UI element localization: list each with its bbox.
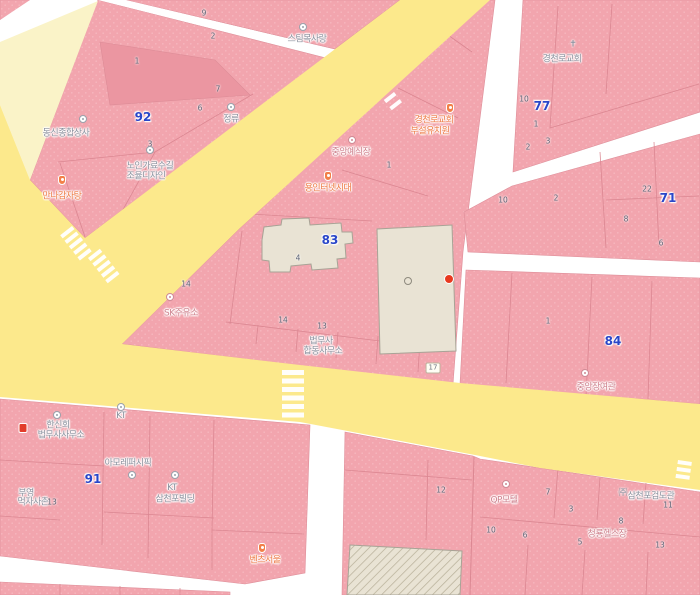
route-shield: 17 bbox=[426, 363, 441, 374]
law-office-icon bbox=[53, 411, 61, 419]
parcel-number: 2 bbox=[211, 32, 216, 41]
parcel-number: 1 bbox=[534, 120, 539, 129]
parcel-number: 6 bbox=[523, 531, 528, 540]
internet-cafe-pin-icon bbox=[324, 171, 332, 181]
building-hatched bbox=[347, 545, 462, 595]
poi-label-kt: KT bbox=[116, 411, 126, 421]
poi-label-gas-station: SK주유소 bbox=[164, 306, 198, 319]
block-number-84: 84 bbox=[605, 334, 622, 348]
poi-label-buyoung-line2: 먹자사촌 bbox=[17, 495, 48, 508]
poi-label-steam-sauna: 스팀목사랑 bbox=[288, 32, 327, 45]
parcel-number: 14 bbox=[181, 280, 191, 289]
wedding-hall-icon bbox=[348, 136, 356, 144]
inn-poi-icon bbox=[581, 369, 589, 377]
block-number-92: 92 bbox=[135, 110, 152, 124]
poi-label-law-firm: 법무사사무소 bbox=[38, 428, 85, 441]
block-number-91: 91 bbox=[85, 472, 102, 486]
poi-label-wedding-hall: 중앙예식장 bbox=[332, 145, 371, 158]
parcel-number: 1 bbox=[546, 317, 551, 326]
benz-seoul-pin-icon bbox=[258, 543, 266, 553]
block-number-71: 71 bbox=[660, 191, 677, 205]
poi-label-qp-motel: QP모텔 bbox=[490, 493, 517, 506]
parcel-number: 13 bbox=[317, 322, 327, 331]
poi-label-kindergarten-line2: 부설유치원 bbox=[411, 124, 450, 137]
poi-label-kt-building-line2: 삼천포빌딩 bbox=[156, 492, 195, 505]
poi-label-benz-seoul: 벤츠서울 bbox=[249, 553, 280, 566]
parcel-number: 10 bbox=[519, 95, 529, 104]
sauna-poi-icon bbox=[299, 23, 307, 31]
kt-poi-icon bbox=[117, 403, 125, 411]
parcel-number: 6 bbox=[659, 239, 664, 248]
parcel-number: 11 bbox=[663, 501, 673, 510]
parcel-number: 4 bbox=[296, 254, 301, 263]
parcel-number: 9 bbox=[202, 9, 207, 18]
amorepacific-icon bbox=[128, 471, 136, 479]
building-b bbox=[377, 225, 456, 354]
kindergarten-pin-icon bbox=[446, 103, 454, 113]
parcel-number: 22 bbox=[642, 185, 652, 194]
parcel-number: 13 bbox=[655, 541, 665, 550]
company-poi-icon bbox=[79, 115, 87, 123]
poi-label-noin-line2: 조율디자인 bbox=[127, 169, 166, 182]
poi-label-bus-stop: 정류 bbox=[223, 112, 239, 125]
poi-label-inn: 중앙장여관 bbox=[577, 380, 616, 393]
poi-label-church: 경천로교회 bbox=[543, 52, 582, 65]
parcel-number: 8 bbox=[619, 517, 624, 526]
parcel-number: 2 bbox=[554, 194, 559, 203]
poi-label-amorepacific: 아모레퍼시픽 bbox=[105, 456, 152, 469]
parcel-number: 3 bbox=[546, 137, 551, 146]
studio-poi-icon bbox=[146, 146, 154, 154]
motel-poi-icon bbox=[502, 480, 510, 488]
block-number-83: 83 bbox=[322, 233, 339, 247]
church-icon: ✝ bbox=[569, 41, 577, 50]
map-canvas bbox=[0, 0, 700, 595]
parcel-number: 2 bbox=[526, 143, 531, 152]
kt-building-icon bbox=[171, 471, 179, 479]
crosswalk-4 bbox=[675, 460, 691, 480]
gas-station-icon bbox=[166, 293, 174, 301]
company-icon: ㈜ bbox=[618, 490, 627, 499]
parcel-number: 6 bbox=[198, 104, 203, 113]
parcel-number: 7 bbox=[546, 488, 551, 497]
parcel-number: 5 bbox=[578, 538, 583, 547]
poi-label-fitness: 청룡헬스장 bbox=[588, 527, 627, 540]
parcel-number: 1 bbox=[135, 57, 140, 66]
parcel-number: 10 bbox=[486, 526, 496, 535]
block-number-77: 77 bbox=[534, 99, 551, 113]
parcel-number: 10 bbox=[498, 196, 508, 205]
poi-label-dongsin-trading: 동신종합상사 bbox=[43, 126, 90, 139]
red-poi-icon bbox=[19, 423, 28, 433]
parcel-number: 8 bbox=[624, 215, 629, 224]
map-viewport[interactable]: 92 77 71 83 84 91 스팀목사랑 정류 동신종합상사 노인가료수길… bbox=[0, 0, 700, 595]
poi-label-internet-cafe: 용인터넷시대 bbox=[305, 181, 352, 194]
bus-stop-icon bbox=[227, 103, 235, 111]
parcel-number: 14 bbox=[278, 316, 288, 325]
poi-label-law-office-line2: 합동사무소 bbox=[304, 344, 343, 357]
poi-label-restaurant: 만나감자탕 bbox=[43, 189, 82, 202]
red-dot-marker bbox=[445, 275, 454, 284]
parcel-number: 13 bbox=[47, 498, 57, 507]
parcel-number: 1 bbox=[387, 161, 392, 170]
parcel-number: 12 bbox=[436, 486, 446, 495]
parcel-number: 7 bbox=[216, 85, 221, 94]
parcel-number: 3 bbox=[569, 505, 574, 514]
restaurant-pin-icon bbox=[58, 175, 66, 185]
